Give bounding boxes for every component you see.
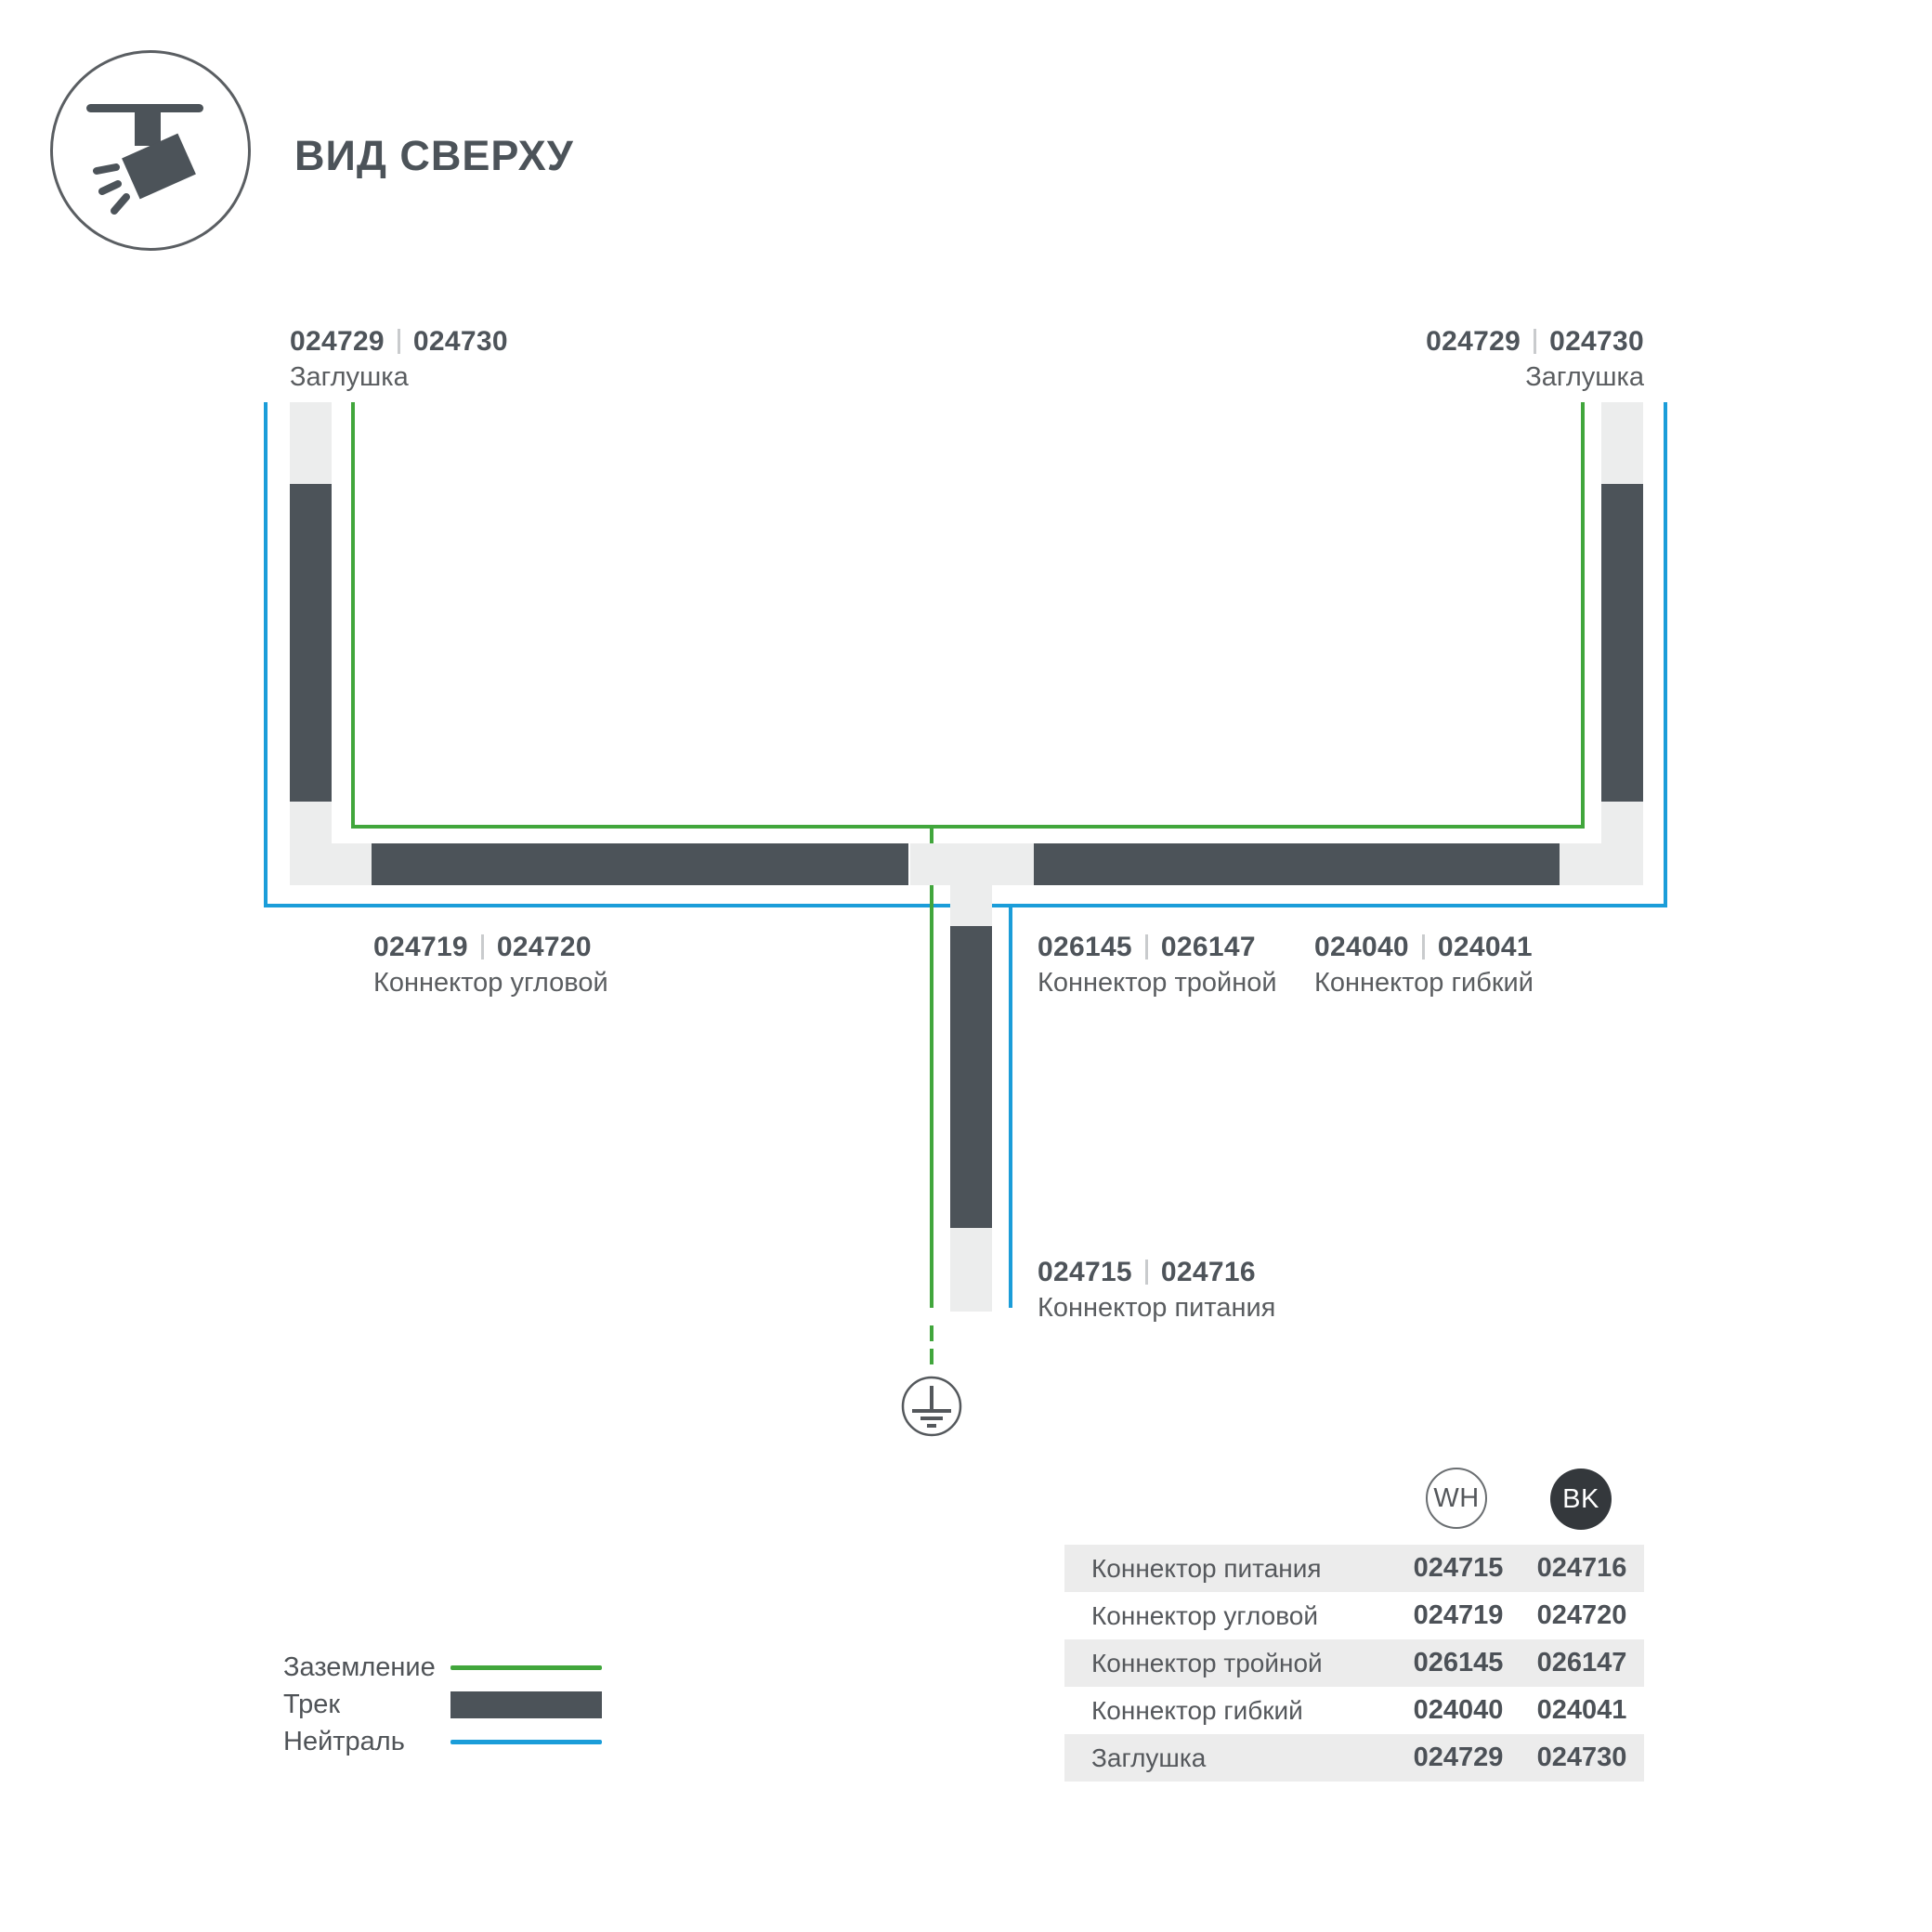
row-name: Коннектор угловой — [1091, 1592, 1318, 1639]
flex-connector-right-horizontal — [1560, 843, 1643, 885]
legend-row-ground: Заземление — [283, 1649, 602, 1686]
row-code-wh: 024040 — [1414, 1687, 1504, 1734]
row-name: Заглушка — [1091, 1734, 1206, 1782]
code-bk: 024716 — [1161, 1257, 1256, 1287]
page-title: ВИД СВЕРХУ — [294, 132, 574, 180]
code-wh: 024729 — [290, 326, 385, 357]
code-separator — [1145, 1260, 1148, 1285]
label-tee-connector: 026145026147 Коннектор тройной — [1038, 930, 1277, 1000]
earth-ground-icon — [900, 1375, 963, 1438]
column-badge-white: WH — [1426, 1468, 1487, 1529]
code-bk: 024720 — [497, 932, 592, 962]
track-center — [950, 926, 992, 1228]
neutral-line-left — [264, 402, 268, 907]
page: ВИД СВЕРХУ — [0, 0, 1932, 1932]
legend-swatch-neutral-line — [450, 1740, 602, 1744]
endcap-left — [290, 402, 332, 484]
endcap-right — [1601, 402, 1643, 484]
neutral-line-right — [1664, 402, 1667, 907]
code-bk: 026147 — [1161, 932, 1256, 962]
neutral-line-center-drop — [1009, 907, 1012, 1308]
table-row: Коннектор гибкий 024040 024041 — [1064, 1687, 1644, 1734]
code-bk: 024730 — [1549, 326, 1644, 357]
label-endcap-left: 024729024730 Заглушка — [290, 324, 508, 395]
article-codes: 026145026147 — [1038, 930, 1277, 965]
legend-label: Заземление — [283, 1652, 450, 1683]
tee-connector-vertical — [950, 885, 992, 926]
ground-line-bottom — [351, 825, 1585, 829]
code-separator — [1422, 934, 1425, 959]
code-wh: 026145 — [1038, 932, 1132, 962]
tee-connector-horizontal — [910, 843, 1034, 885]
table-row: Коннектор угловой 024719 024720 — [1064, 1592, 1644, 1639]
row-code-wh: 024719 — [1414, 1592, 1504, 1639]
code-wh: 024729 — [1426, 326, 1521, 357]
column-badge-black: BK — [1550, 1469, 1612, 1530]
article-codes: 024040024041 — [1314, 930, 1534, 965]
code-separator — [1534, 329, 1536, 354]
article-codes: 024729024730 — [1426, 324, 1644, 359]
row-code-bk: 024730 — [1537, 1734, 1627, 1782]
track-spotlight-icon — [53, 53, 248, 248]
row-code-bk: 026147 — [1537, 1639, 1627, 1687]
row-code-wh: 024729 — [1414, 1734, 1504, 1782]
row-name: Коннектор тройной — [1091, 1639, 1323, 1687]
row-code-wh: 024715 — [1414, 1545, 1504, 1592]
row-name: Коннектор питания — [1091, 1545, 1322, 1592]
legend: Заземление Трек Нейтраль — [283, 1649, 602, 1760]
ground-line-right — [1581, 402, 1585, 829]
label-corner-connector: 024719024720 Коннектор угловой — [373, 930, 608, 1000]
row-name: Коннектор гибкий — [1091, 1687, 1303, 1734]
corner-connector-left-horizontal — [290, 843, 372, 885]
component-name: Коннектор тройной — [1038, 965, 1277, 1000]
code-separator — [398, 329, 400, 354]
legend-label: Трек — [283, 1690, 450, 1720]
neutral-line-bottom-left — [264, 904, 950, 907]
ground-line-dash-1 — [930, 1325, 933, 1341]
table-row: Заглушка 024729 024730 — [1064, 1734, 1644, 1782]
track-bottom-left — [372, 843, 908, 885]
table-row: Коннектор питания 024715 024716 — [1064, 1545, 1644, 1592]
label-endcap-right: 024729024730 Заглушка — [1426, 324, 1644, 395]
row-code-bk: 024720 — [1537, 1592, 1627, 1639]
article-codes: 024715024716 — [1038, 1255, 1275, 1290]
label-flex-connector: 024040024041 Коннектор гибкий — [1314, 930, 1534, 1000]
row-code-wh: 026145 — [1414, 1639, 1504, 1687]
label-power-connector: 024715024716 Коннектор питания — [1038, 1255, 1275, 1325]
code-bk: 024041 — [1438, 932, 1533, 962]
track-left — [290, 484, 332, 802]
component-name: Коннектор питания — [1038, 1290, 1275, 1325]
component-name: Заглушка — [1426, 359, 1644, 395]
legend-swatch-track-bar — [450, 1691, 602, 1718]
top-view-badge — [50, 50, 251, 251]
article-codes: 024729024730 — [290, 324, 508, 359]
legend-label: Нейтраль — [283, 1727, 450, 1757]
ground-line-center-drop — [930, 829, 933, 1308]
code-wh: 024719 — [373, 932, 468, 962]
legend-swatch-ground-line — [450, 1665, 602, 1670]
legend-row-track: Трек — [283, 1686, 602, 1723]
neutral-line-bottom-right — [992, 904, 1667, 907]
component-name: Заглушка — [290, 359, 508, 395]
power-connector — [950, 1228, 992, 1312]
row-code-bk: 024041 — [1537, 1687, 1627, 1734]
article-codes: 024719024720 — [373, 930, 608, 965]
row-code-bk: 024716 — [1537, 1545, 1627, 1592]
code-separator — [481, 934, 484, 959]
article-table: Коннектор питания 024715 024716 Коннекто… — [1064, 1545, 1644, 1782]
component-name: Коннектор угловой — [373, 965, 608, 1000]
ground-line-left — [351, 402, 355, 829]
legend-row-neutral: Нейтраль — [283, 1723, 602, 1760]
ground-line-dash-2 — [930, 1349, 933, 1364]
track-right — [1601, 484, 1643, 802]
table-row: Коннектор тройной 026145 026147 — [1064, 1639, 1644, 1687]
component-name: Коннектор гибкий — [1314, 965, 1534, 1000]
code-wh: 024040 — [1314, 932, 1409, 962]
code-wh: 024715 — [1038, 1257, 1132, 1287]
code-bk: 024730 — [413, 326, 508, 357]
track-bottom-right — [1034, 843, 1560, 885]
code-separator — [1145, 934, 1148, 959]
